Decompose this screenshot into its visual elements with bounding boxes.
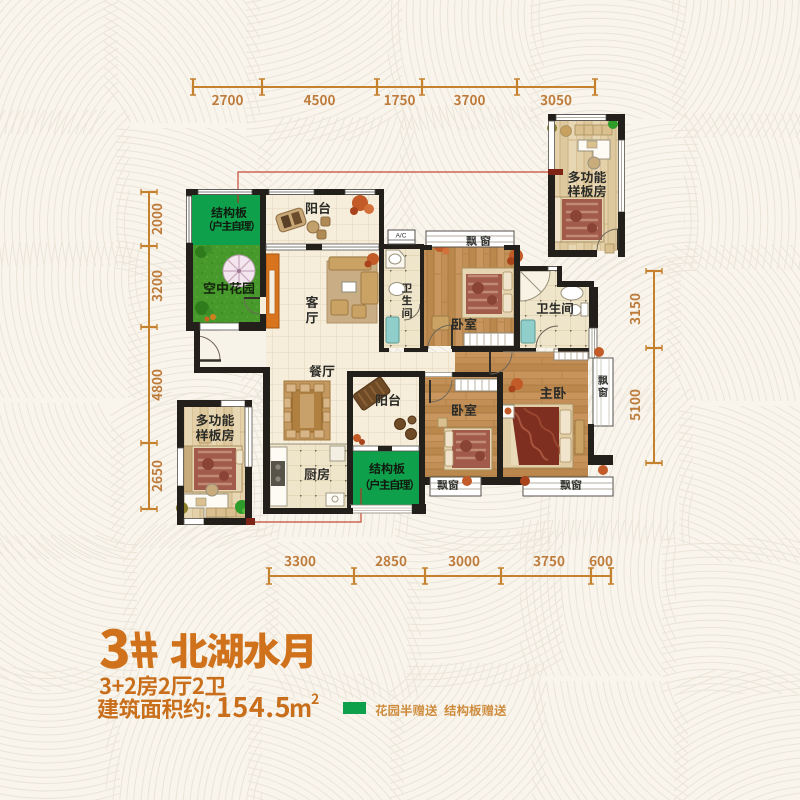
svg-text:A/C: A/C bbox=[396, 233, 407, 240]
